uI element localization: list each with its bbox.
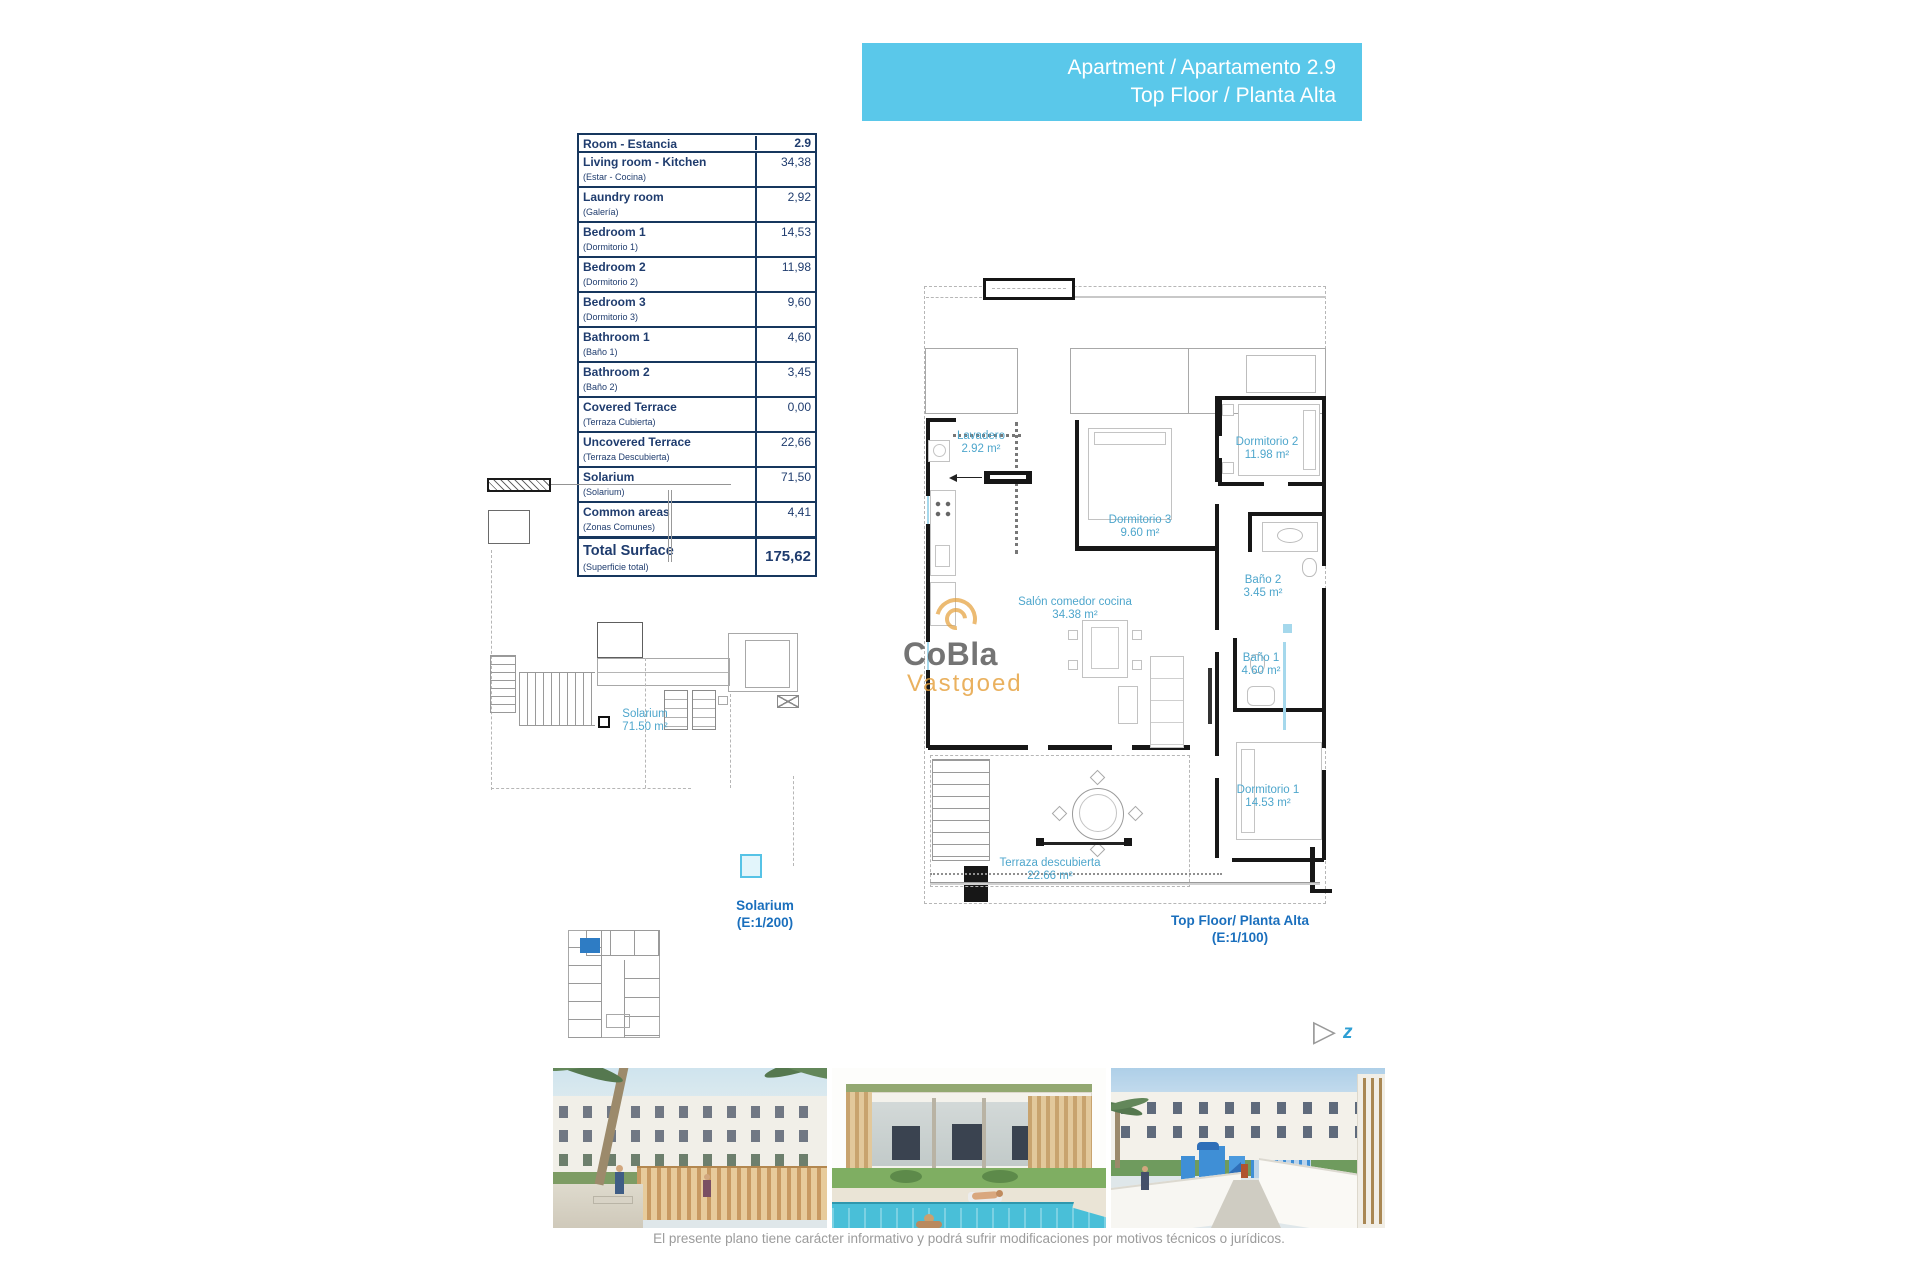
wall-segment: [1288, 482, 1326, 486]
boundary-dashed: [793, 776, 794, 866]
bush: [890, 1170, 922, 1183]
wooden-fence: [637, 1166, 827, 1220]
main-floor-plan: Lavadero2.92 m² Dormitorio 211.98 m² Dor…: [920, 272, 1336, 932]
site-pool: [606, 1014, 630, 1028]
dining-chair: [1132, 660, 1142, 670]
wall-segment: [926, 418, 956, 422]
room-area: 3,45: [755, 363, 815, 396]
table-row: Living room - Kitchen(Estar - Cocina)34,…: [579, 153, 815, 188]
tv-unit: [1208, 668, 1212, 724]
plan-sheet: Apartment / Apartamento 2.9 Top Floor / …: [0, 0, 1920, 1280]
room-sublabel: (Terraza Descubierta): [583, 452, 755, 462]
room-area: 2,92: [755, 188, 815, 221]
hob-burners: [933, 499, 953, 519]
wall-segment: [928, 745, 1028, 750]
room-label: Bathroom 1: [583, 330, 755, 344]
room-sublabel: (Dormitorio 1): [583, 242, 755, 252]
dining-chair: [1132, 630, 1142, 640]
table-row: Bathroom 1(Baño 1)4,60: [579, 328, 815, 363]
wall-segment: [1215, 652, 1219, 756]
roof-box: [597, 622, 643, 658]
door-swing-line: [956, 477, 982, 478]
playground-tower: [1181, 1156, 1195, 1180]
coffee-table: [1118, 686, 1138, 724]
room-label-dormitorio-3: Dormitorio 39.60 m²: [1087, 514, 1193, 540]
nightstand: [1222, 404, 1234, 416]
facade-line: [930, 882, 1320, 885]
room-area: 0,00: [755, 398, 815, 431]
room-sublabel: (Galería): [583, 207, 755, 217]
render-photo-street: [553, 1068, 827, 1228]
summer-kitchen-inner: [745, 640, 790, 688]
stair-bulkhead: [983, 278, 1075, 300]
room-label: Living room - Kitchen: [583, 155, 755, 169]
stair-bulkhead: [487, 478, 551, 492]
window-row: [1121, 1102, 1375, 1114]
roof-divider: [1188, 349, 1189, 413]
roof-window-box: [1246, 355, 1316, 393]
nightstand: [1222, 462, 1234, 474]
parapet-wall: [668, 490, 672, 562]
gym-equipment: [952, 1124, 982, 1160]
terrace-rail: [1040, 842, 1128, 845]
room-label: Bedroom 3: [583, 295, 755, 309]
boundary-dashed: [491, 788, 691, 789]
table-row: Bedroom 3(Dormitorio 3)9,60: [579, 293, 815, 328]
pool-ripples: [832, 1208, 1106, 1228]
room-label: Covered Terrace: [583, 400, 755, 414]
pavement: [553, 1184, 643, 1228]
palm-trunk: [932, 1098, 936, 1170]
room-label: Bedroom 1: [583, 225, 755, 239]
rail-post: [1124, 838, 1132, 846]
logo-suffix: Vastgoed: [907, 670, 1023, 698]
room-sublabel: (Dormitorio 3): [583, 312, 755, 322]
child-figure: [1241, 1164, 1248, 1178]
sunbather-head: [996, 1190, 1003, 1197]
wall-segment: [1248, 512, 1324, 516]
room-area: 22,66: [755, 433, 815, 466]
playground-canopy: [1197, 1142, 1219, 1150]
lawn: [832, 1168, 1106, 1190]
swimmer-arms: [916, 1221, 942, 1228]
table-row: Bedroom 1(Dormitorio 1)14,53: [579, 223, 815, 258]
highlighted-unit: [580, 938, 600, 953]
title-banner: Apartment / Apartamento 2.9 Top Floor / …: [862, 43, 1362, 121]
room-area: 9,60: [755, 293, 815, 326]
sofa: [1150, 656, 1184, 748]
room-area: 34,38: [755, 153, 815, 186]
wall-segment: [1215, 504, 1219, 630]
side-table: [718, 696, 728, 705]
window-row: [559, 1106, 821, 1118]
dining-chair: [1068, 660, 1078, 670]
roof-box: [488, 510, 530, 544]
room-label-bano-2: Baño 23.45 m²: [1225, 574, 1301, 600]
roof-void-left: [925, 348, 1018, 414]
room-label-solarium: Solarium71.50 m²: [595, 708, 695, 734]
skylight-cross-box: [777, 695, 799, 708]
room-label-salon: Salón comedor cocina34.38 m²: [995, 596, 1155, 622]
pedestrian-head: [616, 1165, 623, 1172]
room-label-dormitorio-2: Dormitorio 211.98 m²: [1217, 436, 1317, 462]
roof-edge-line: [551, 484, 731, 485]
wall-segment: [1248, 512, 1252, 552]
toilet: [1302, 558, 1317, 577]
terrace-table: [1072, 788, 1124, 840]
bench: [593, 1196, 633, 1204]
table-row: Covered Terrace(Terraza Cubierta)0,00: [579, 398, 815, 433]
solarium-stairs: [490, 655, 516, 713]
door-arrow: [949, 474, 957, 482]
rail-post: [1036, 838, 1044, 846]
table-header-row: Room - Estancia 2.9: [579, 135, 815, 153]
window-row: [1121, 1126, 1375, 1138]
dining-table: [1082, 620, 1128, 678]
pedestrian: [615, 1172, 624, 1194]
bulkhead-hatch: [992, 288, 1066, 289]
interior-dashed: [730, 694, 731, 788]
banner-line-floor: Top Floor / Planta Alta: [862, 82, 1336, 110]
stair-void-highlight: [740, 854, 762, 878]
main-plan-caption: Top Floor/ Planta Alta (E:1/100): [1145, 912, 1335, 946]
pergola-slat: [1379, 1078, 1382, 1224]
bed-dormitorio-3: [1088, 428, 1172, 520]
sliding-door: [984, 471, 1032, 484]
dining-chair: [1068, 630, 1078, 640]
pergola-slat: [1371, 1078, 1374, 1224]
pedestrian-head: [704, 1174, 710, 1180]
pedestrian: [703, 1180, 711, 1197]
room-area: 4,60: [755, 328, 815, 361]
shower-head: [1283, 624, 1292, 633]
room-label-dormitorio-1: Dormitorio 114.53 m²: [1218, 784, 1318, 810]
sun-lounger: [692, 690, 716, 730]
pergola-slats: [519, 672, 595, 726]
parapet-band: [597, 658, 730, 686]
solarium-plan: Solarium71.50 m²: [485, 476, 800, 894]
wall-segment: [1075, 546, 1217, 551]
wall-segment: [1322, 770, 1326, 860]
room-label-terraza: Terraza descubierta22.66 m²: [990, 857, 1110, 883]
wall-segment: [1075, 420, 1079, 550]
wall-segment: [1233, 708, 1323, 712]
table-row: Bathroom 2(Baño 2)3,45: [579, 363, 815, 398]
wall-segment: [1048, 745, 1112, 750]
header-value: 2.9: [755, 136, 815, 150]
north-arrow-label: z: [1343, 1022, 1353, 1044]
wall-segment: [1218, 396, 1326, 400]
room-sublabel: (Baño 1): [583, 347, 755, 357]
header-label: Room - Estancia: [579, 135, 755, 151]
window-row: [559, 1130, 821, 1142]
wood-slat-wall: [1028, 1096, 1092, 1174]
pedestrian-head: [1142, 1166, 1148, 1172]
banner-line-apartment: Apartment / Apartamento 2.9: [862, 54, 1336, 82]
pedestrian: [1141, 1172, 1149, 1190]
solarium-caption: Solarium(E:1/200): [702, 897, 828, 931]
render-photo-playground: [1111, 1068, 1385, 1228]
site-key-plan: [566, 926, 666, 1046]
north-arrow-icon: ▷: [1313, 1014, 1336, 1049]
table-row: Bedroom 2(Dormitorio 2)11,98: [579, 258, 815, 293]
exterior-stairs: [932, 759, 990, 861]
bathroom1-sink: [1247, 686, 1275, 706]
wood-slat-wall: [846, 1092, 872, 1174]
wall-segment: [1322, 396, 1326, 566]
wall-segment: [1310, 889, 1332, 893]
palm-trunk: [1115, 1112, 1120, 1168]
room-label: Bedroom 2: [583, 260, 755, 274]
disclaimer-text: El presente plano tiene carácter informa…: [553, 1231, 1385, 1246]
room-sublabel: (Estar - Cocina): [583, 172, 755, 182]
logo-name: CoBla: [903, 636, 998, 673]
roof-edge-line: [1075, 296, 1326, 298]
kitchen-sink: [935, 545, 950, 567]
room-sublabel: (Dormitorio 2): [583, 277, 755, 287]
room-label-bano-1: Baño 14.60 m²: [1223, 652, 1299, 678]
kitchen-counter: [930, 490, 956, 576]
bathroom2-vanity: [1262, 522, 1318, 552]
table-row: Laundry room(Galería)2,92: [579, 188, 815, 223]
room-sublabel: (Baño 2): [583, 382, 755, 392]
room-sublabel: (Terraza Cubierta): [583, 417, 755, 427]
wall-segment: [1322, 588, 1326, 748]
room-label: Laundry room: [583, 190, 755, 204]
wall-segment: [1310, 847, 1315, 893]
gym-equipment: [892, 1126, 920, 1160]
room-label: Bathroom 2: [583, 365, 755, 379]
room-area: 14,53: [755, 223, 815, 256]
window-glazing: [927, 496, 929, 524]
render-photo-pool-gym: [832, 1068, 1106, 1228]
room-area: 11,98: [755, 258, 815, 291]
table-row: Uncovered Terrace(Terraza Descubierta)22…: [579, 433, 815, 468]
roof-edge-dashed: [926, 297, 982, 298]
pergola-slat: [1363, 1078, 1366, 1224]
bush: [982, 1170, 1018, 1183]
room-label-lavadero: Lavadero2.92 m²: [945, 430, 1017, 456]
room-label: Uncovered Terrace: [583, 435, 755, 449]
wall-segment: [1218, 482, 1264, 486]
palm-trunk: [982, 1098, 986, 1170]
